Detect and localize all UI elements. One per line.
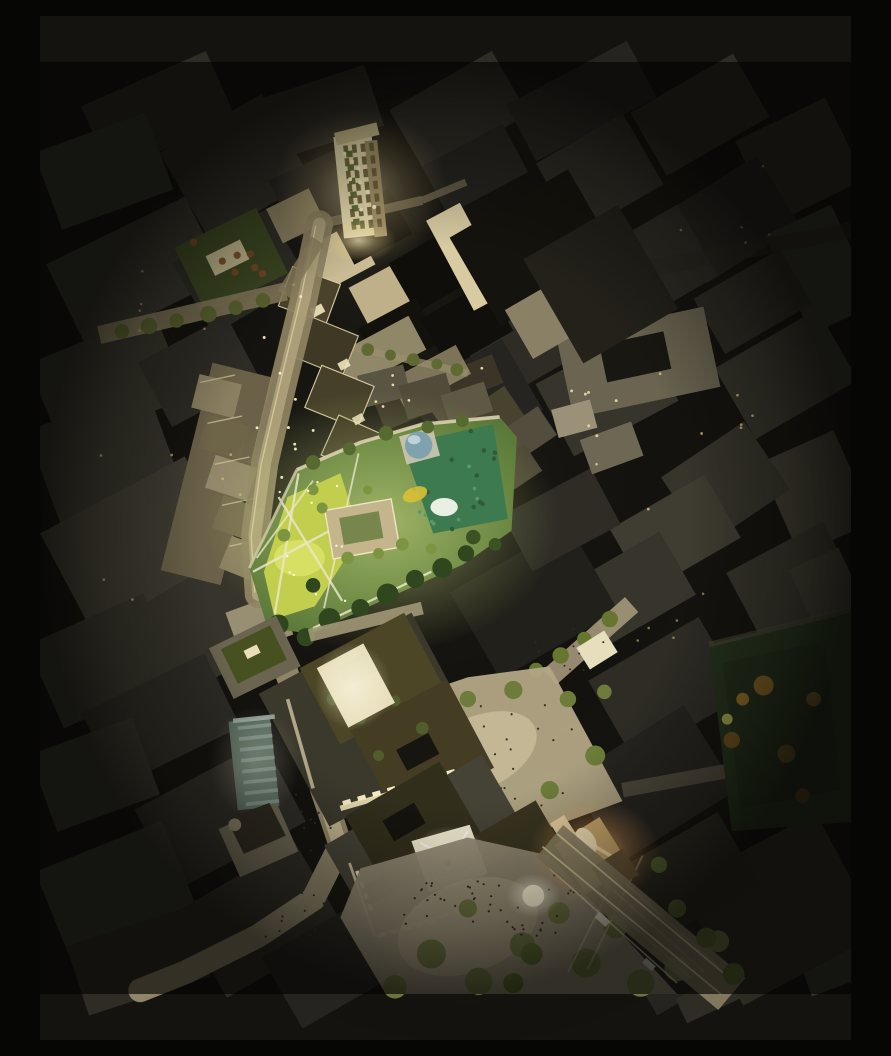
vignette [40, 62, 851, 994]
night-aerial-masterplan-rendering [40, 16, 851, 1040]
rect [40, 62, 851, 994]
rendering-canvas [40, 16, 851, 1040]
